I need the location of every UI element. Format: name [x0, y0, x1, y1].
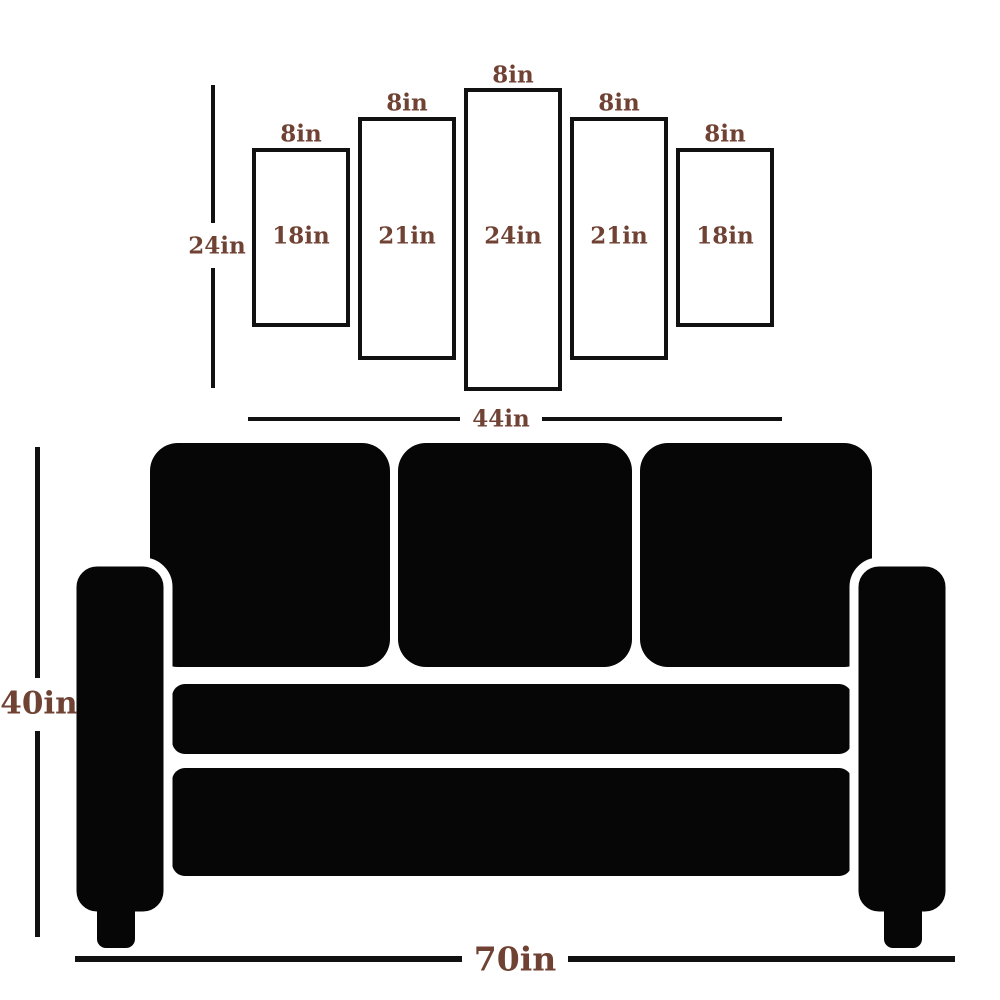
panel-set-width-line-right-segment — [542, 417, 782, 421]
panel-set-height-label: 24in — [188, 235, 245, 258]
sofa-back-cushion-left — [150, 443, 390, 667]
panel-5-width-label: 8in — [704, 123, 745, 146]
panel-1-height-label: 18in — [272, 225, 329, 248]
panel-3-width-label: 8in — [492, 64, 533, 87]
panel-4-height-label: 21in — [590, 225, 647, 248]
panel-set-width-line-left-segment — [248, 417, 460, 421]
sofa-foot-right — [884, 902, 922, 948]
sofa-foot-left — [97, 902, 135, 948]
panel-5-height-label: 18in — [696, 225, 753, 248]
sofa-illustration — [0, 430, 1000, 970]
sofa-height-line-top-segment — [35, 447, 40, 678]
panel-set-height-line-bottom-segment — [211, 268, 215, 388]
sofa-back-cushion-middle — [398, 443, 632, 667]
panel-4-width-label: 8in — [598, 92, 639, 115]
sofa-height-label: 40in — [0, 689, 77, 720]
sofa-height-line-bottom-segment — [35, 731, 40, 937]
sofa-seat-rail-bottom — [172, 768, 852, 876]
sofa-armrest-right — [854, 562, 950, 916]
panel-2-width-label: 8in — [386, 92, 427, 115]
sofa-width-line-left-segment — [75, 956, 462, 962]
sofa-seat-rail-top — [172, 684, 852, 754]
panel-set-width-label: 44in — [472, 408, 529, 431]
sofa-width-line-right-segment — [568, 956, 955, 962]
panel-3-height-label: 24in — [484, 225, 541, 248]
panel-set-height-line-top-segment — [211, 85, 215, 223]
sofa-armrest-left — [72, 562, 168, 916]
panel-1-width-label: 8in — [280, 123, 321, 146]
sofa-back-cushion-right — [640, 443, 872, 667]
sofa-width-label: 70in — [474, 943, 556, 976]
panel-2-height-label: 21in — [378, 225, 435, 248]
product-dimension-diagram: 24in 8in 8in 8in 8in 8in 18in 21in 24in … — [0, 0, 1000, 1000]
